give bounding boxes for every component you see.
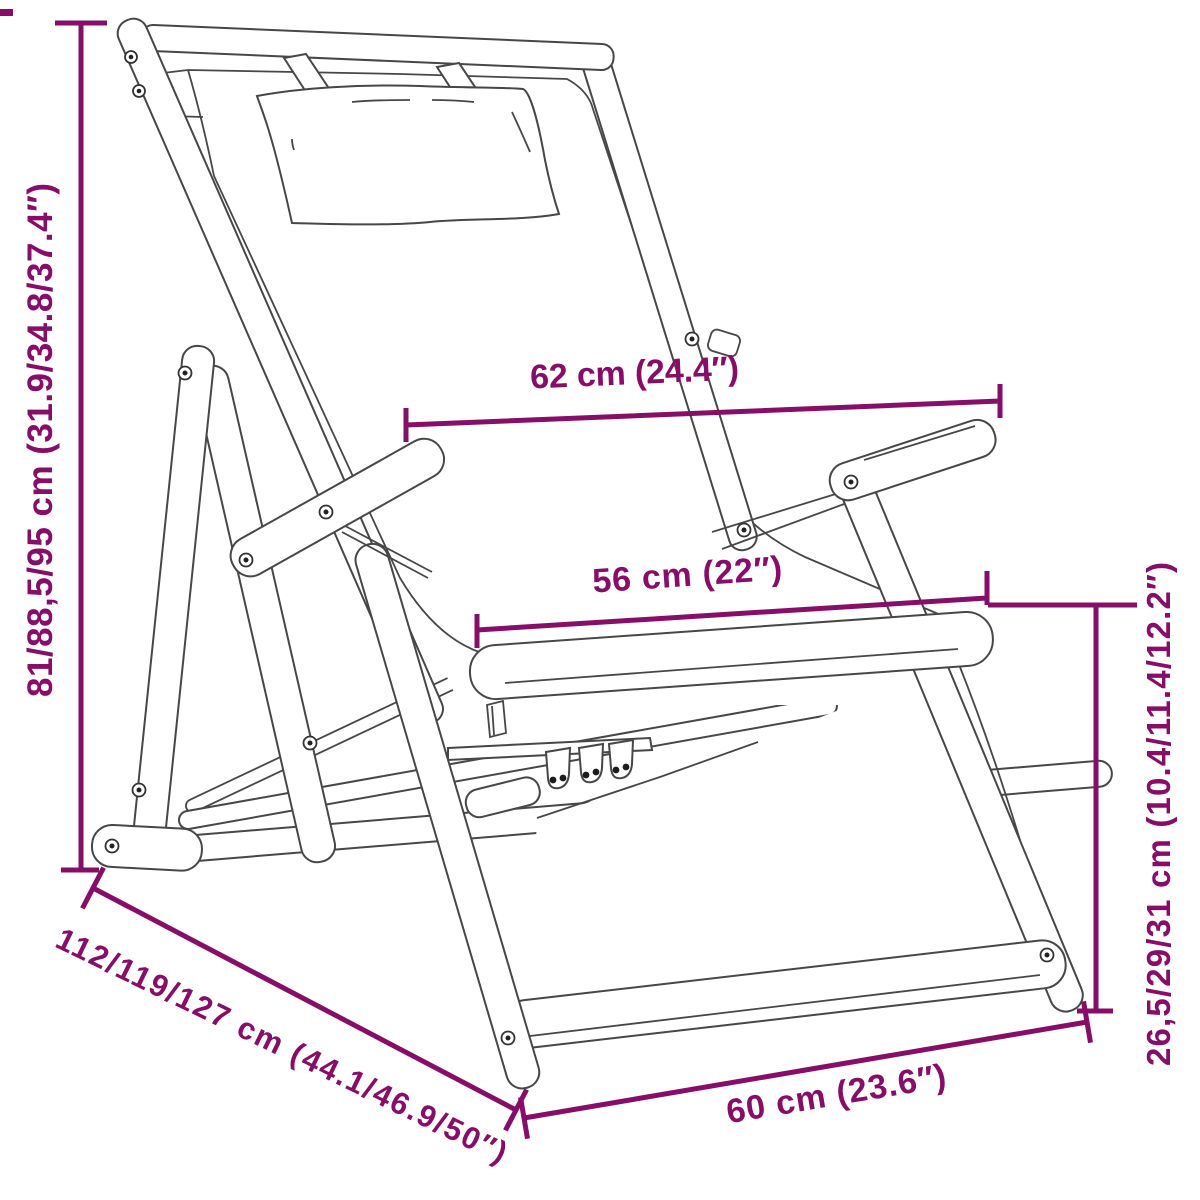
svg-text:81/88,5/95 cm (31.9/34.8/37.4″: 81/88,5/95 cm (31.9/34.8/37.4″) bbox=[21, 183, 60, 697]
svg-text:26,5/29/31 cm (10.4/11.4/12.2″: 26,5/29/31 cm (10.4/11.4/12.2″) bbox=[1140, 562, 1177, 1066]
